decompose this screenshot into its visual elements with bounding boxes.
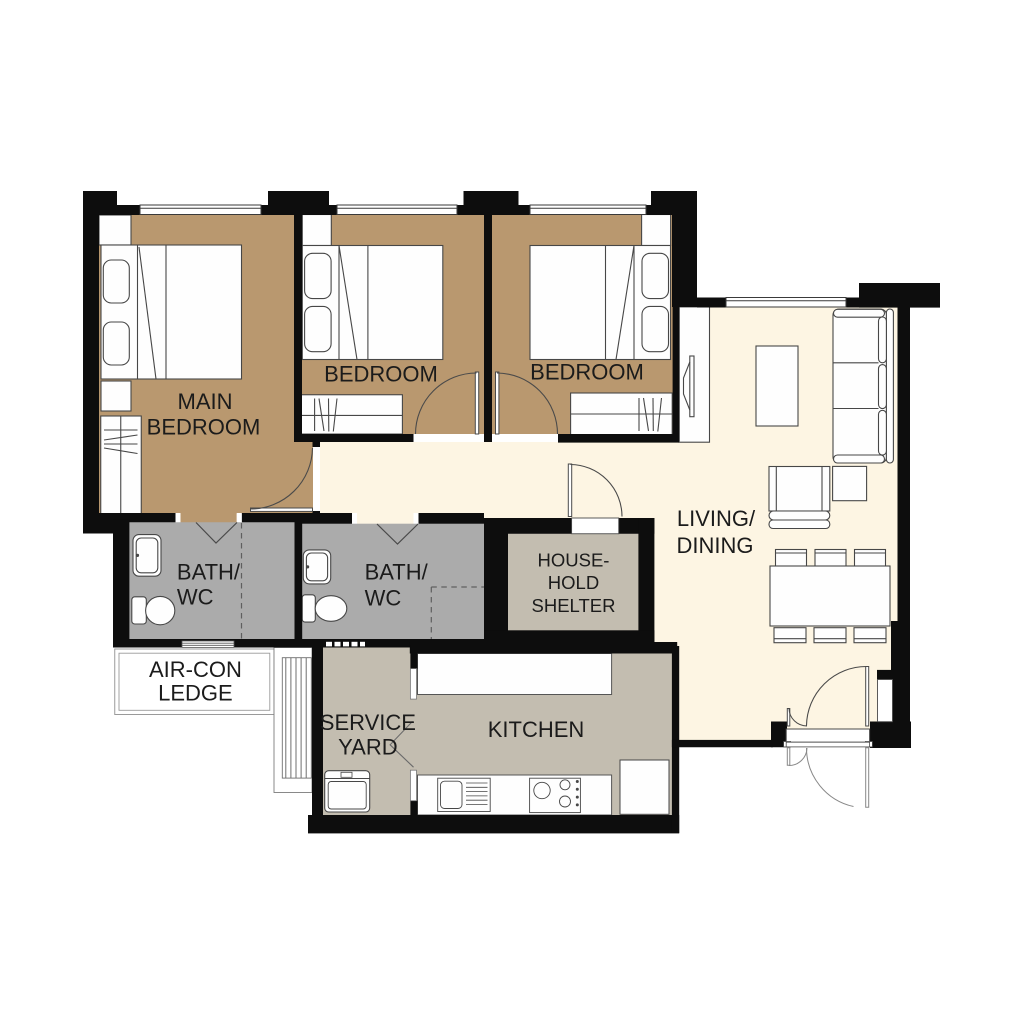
svg-text:WC: WC [177, 585, 214, 610]
svg-text:BATH/: BATH/ [177, 560, 241, 585]
svg-text:HOUSE-: HOUSE- [538, 550, 610, 571]
svg-text:KITCHEN: KITCHEN [488, 717, 585, 742]
svg-text:LEDGE: LEDGE [158, 681, 233, 706]
svg-text:AIR-CON: AIR-CON [149, 657, 242, 682]
svg-text:BATH/: BATH/ [365, 560, 429, 585]
svg-text:SERVICE: SERVICE [320, 710, 416, 735]
svg-text:MAIN: MAIN [178, 389, 233, 414]
svg-text:BEDROOM: BEDROOM [147, 415, 261, 440]
svg-text:SHELTER: SHELTER [532, 595, 616, 616]
svg-text:BEDROOM: BEDROOM [324, 362, 438, 387]
svg-text:YARD: YARD [338, 735, 398, 760]
svg-text:HOLD: HOLD [548, 572, 599, 593]
svg-text:LIVING/: LIVING/ [677, 506, 756, 531]
svg-text:BEDROOM: BEDROOM [530, 360, 644, 385]
svg-text:DINING: DINING [677, 533, 754, 558]
svg-text:WC: WC [365, 586, 402, 611]
